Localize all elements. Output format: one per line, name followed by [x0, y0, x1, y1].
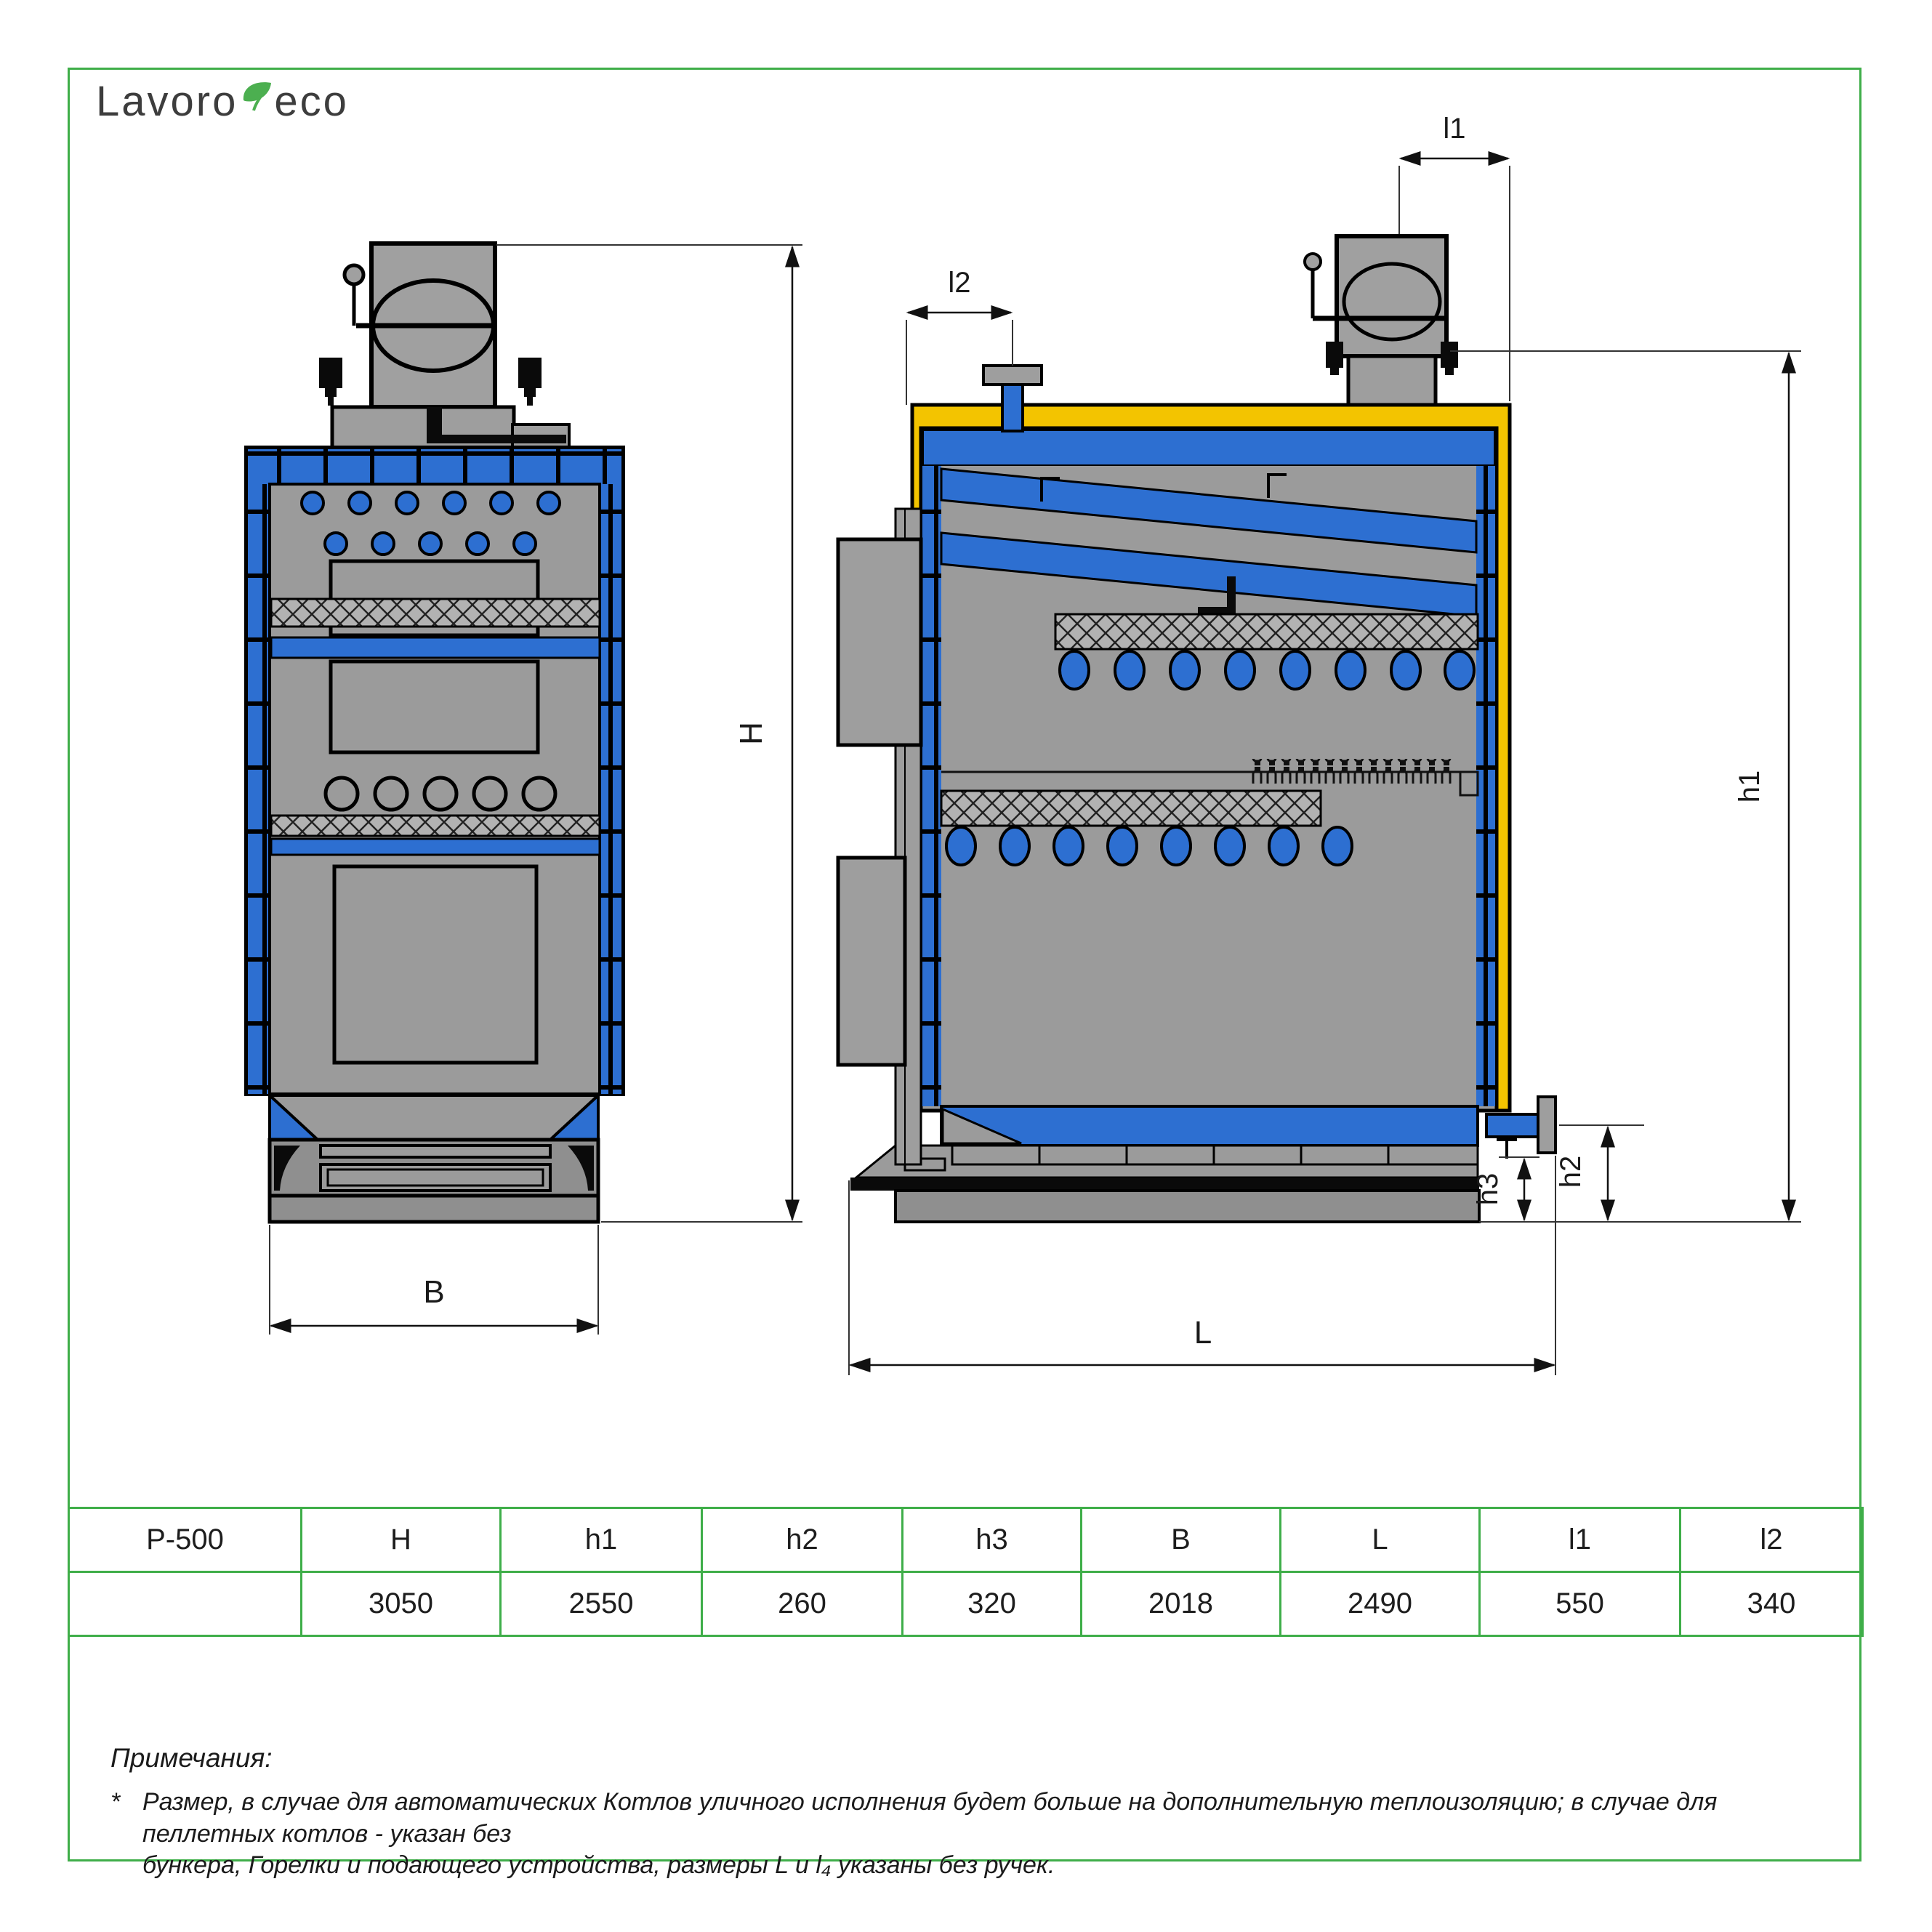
dim-B: B — [270, 1225, 598, 1335]
value-model — [69, 1572, 302, 1636]
note-item: * Размер, в случае для автоматических Ко… — [110, 1787, 1819, 1882]
side-box-upper — [838, 539, 921, 745]
side-grate-lower — [941, 791, 1321, 826]
header-l2: l2 — [1681, 1508, 1863, 1572]
header-H: H — [302, 1508, 501, 1572]
note-line-1: Размер, в случае для автоматических Котл… — [142, 1787, 1819, 1850]
dimensions-table: P-500 H h1 h2 h3 B L l1 l2 3050 2550 260… — [68, 1507, 1864, 1637]
table-values-row: 3050 2550 260 320 2018 2490 550 340 — [69, 1572, 1863, 1636]
header-B: B — [1082, 1508, 1281, 1572]
svg-text:h3: h3 — [1472, 1173, 1504, 1206]
front-water-band-upper — [271, 637, 600, 658]
front-hatch-lower — [271, 816, 600, 836]
value-l1: 550 — [1480, 1572, 1681, 1636]
front-pedestal — [332, 407, 569, 448]
side-left-wall — [838, 509, 921, 1164]
svg-text:H: H — [733, 722, 769, 745]
side-brick-column-right — [1476, 466, 1495, 1106]
front-chimney — [345, 243, 495, 407]
page: Lavoro eco — [0, 0, 1932, 1932]
notes: Примечания: * Размер, в случае для автом… — [110, 1743, 1819, 1882]
insulation-brick-row-top — [248, 449, 621, 484]
svg-text:l2: l2 — [948, 267, 970, 299]
valve-handle — [345, 265, 363, 284]
value-L: 2490 — [1281, 1572, 1480, 1636]
front-view — [246, 243, 623, 1222]
insulation-brick-column-left — [248, 484, 270, 1094]
svg-text:h1: h1 — [1734, 770, 1766, 803]
note-marker: * — [110, 1787, 142, 1882]
value-B: 2018 — [1082, 1572, 1281, 1636]
value-h3: 320 — [903, 1572, 1082, 1636]
header-h1: h1 — [501, 1508, 702, 1572]
front-plinth — [270, 1196, 598, 1222]
header-l1: l1 — [1480, 1508, 1681, 1572]
side-box-lower — [838, 858, 905, 1065]
dim-h3: h3 — [1472, 1157, 1539, 1220]
model-cell: P-500 — [69, 1508, 302, 1572]
note-line-2: бункера, Горелки и подающего устройства,… — [142, 1850, 1819, 1882]
technical-drawing: H B l1 l2 — [0, 0, 1932, 1932]
header-L: L — [1281, 1508, 1480, 1572]
front-water-band-lower — [271, 839, 600, 855]
side-plinth — [895, 1191, 1479, 1222]
value-h2: 260 — [702, 1572, 903, 1636]
side-brick-column-left — [922, 466, 941, 1106]
svg-text:L: L — [1194, 1315, 1212, 1351]
side-view — [838, 236, 1555, 1222]
header-h2: h2 — [702, 1508, 903, 1572]
svg-text:B: B — [423, 1274, 444, 1310]
side-water-band-top — [922, 430, 1495, 466]
svg-text:l1: l1 — [1443, 113, 1465, 145]
dim-h2: h2 — [1555, 1125, 1644, 1220]
value-l2: 340 — [1681, 1572, 1863, 1636]
notes-title: Примечания: — [110, 1743, 1819, 1774]
table-header-row: P-500 H h1 h2 h3 B L l1 l2 — [69, 1508, 1863, 1572]
svg-text:h2: h2 — [1555, 1156, 1587, 1188]
value-h1: 2550 — [501, 1572, 702, 1636]
header-h3: h3 — [903, 1508, 1082, 1572]
value-H: 3050 — [302, 1572, 501, 1636]
front-hopper — [270, 1095, 598, 1140]
side-chimney — [1305, 236, 1458, 405]
front-hatch-upper — [271, 599, 600, 627]
side-valve-handle — [1305, 254, 1321, 270]
note-text: Размер, в случае для автоматических Котл… — [142, 1787, 1819, 1882]
insulation-brick-column-right — [600, 484, 621, 1094]
side-bottom — [850, 1106, 1479, 1222]
front-base — [270, 1140, 598, 1222]
pipe-flange — [1538, 1097, 1555, 1153]
